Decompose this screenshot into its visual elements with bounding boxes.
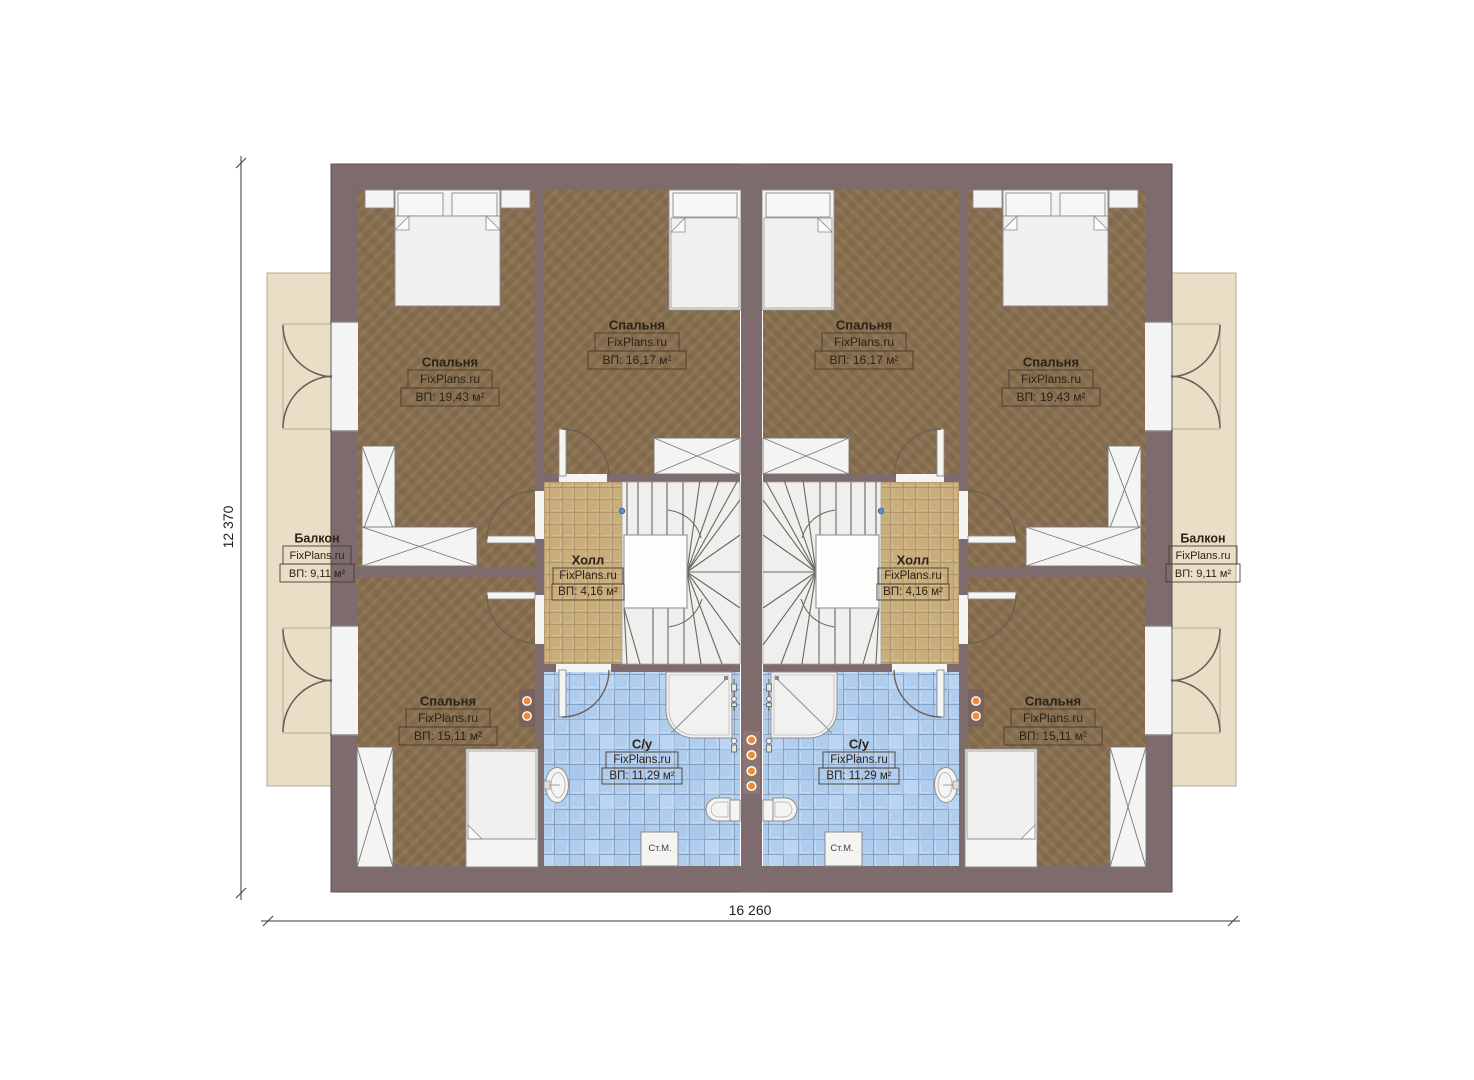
svg-text:16 260: 16 260: [729, 902, 772, 918]
svg-text:FixPlans.ru: FixPlans.ru: [884, 570, 942, 582]
svg-text:FixPlans.ru: FixPlans.ru: [834, 335, 894, 349]
svg-text:ВП: 11,29 м²: ВП: 11,29 м²: [609, 770, 674, 782]
svg-text:Балкон: Балкон: [1180, 532, 1225, 546]
svg-text:Спальня: Спальня: [422, 355, 478, 370]
svg-text:Ст.М.: Ст.М.: [830, 843, 853, 854]
svg-text:Холл: Холл: [572, 553, 605, 568]
svg-text:Спальня: Спальня: [1025, 694, 1081, 709]
svg-text:Холл: Холл: [897, 553, 930, 568]
svg-text:FixPlans.ru: FixPlans.ru: [1021, 372, 1081, 386]
svg-text:ВП: 19,43 м²: ВП: 19,43 м²: [1017, 390, 1086, 404]
svg-text:FixPlans.ru: FixPlans.ru: [559, 570, 617, 582]
svg-text:FixPlans.ru: FixPlans.ru: [613, 754, 671, 766]
svg-text:FixPlans.ru: FixPlans.ru: [289, 550, 344, 562]
svg-text:ВП: 9,11 м²: ВП: 9,11 м²: [1175, 568, 1232, 580]
svg-text:С/у: С/у: [849, 737, 870, 752]
svg-text:Спальня: Спальня: [1023, 355, 1079, 370]
svg-text:ВП: 4,16 м²: ВП: 4,16 м²: [883, 586, 943, 598]
svg-text:Балкон: Балкон: [294, 532, 339, 546]
svg-text:ВП: 16,17 м²: ВП: 16,17 м²: [603, 353, 672, 367]
svg-text:С/у: С/у: [632, 737, 653, 752]
svg-text:FixPlans.ru: FixPlans.ru: [418, 711, 478, 725]
svg-text:FixPlans.ru: FixPlans.ru: [420, 372, 480, 386]
svg-text:ВП: 4,16 м²: ВП: 4,16 м²: [558, 586, 618, 598]
svg-text:FixPlans.ru: FixPlans.ru: [830, 754, 888, 766]
svg-text:ВП: 9,11 м²: ВП: 9,11 м²: [289, 568, 346, 580]
svg-text:ВП: 15,11 м²: ВП: 15,11 м²: [414, 729, 482, 743]
svg-text:ВП: 19,43 м²: ВП: 19,43 м²: [416, 390, 485, 404]
svg-text:ВП: 11,29 м²: ВП: 11,29 м²: [826, 770, 891, 782]
svg-text:FixPlans.ru: FixPlans.ru: [1175, 550, 1230, 562]
svg-text:Ст.М.: Ст.М.: [648, 843, 671, 854]
svg-text:ВП: 15,11 м²: ВП: 15,11 м²: [1019, 729, 1087, 743]
svg-text:FixPlans.ru: FixPlans.ru: [607, 335, 667, 349]
svg-text:Спальня: Спальня: [609, 318, 665, 333]
svg-text:12 370: 12 370: [220, 505, 236, 548]
svg-text:ВП: 16,17 м²: ВП: 16,17 м²: [830, 353, 899, 367]
svg-text:Спальня: Спальня: [836, 318, 892, 333]
svg-text:Спальня: Спальня: [420, 694, 476, 709]
svg-text:FixPlans.ru: FixPlans.ru: [1023, 711, 1083, 725]
